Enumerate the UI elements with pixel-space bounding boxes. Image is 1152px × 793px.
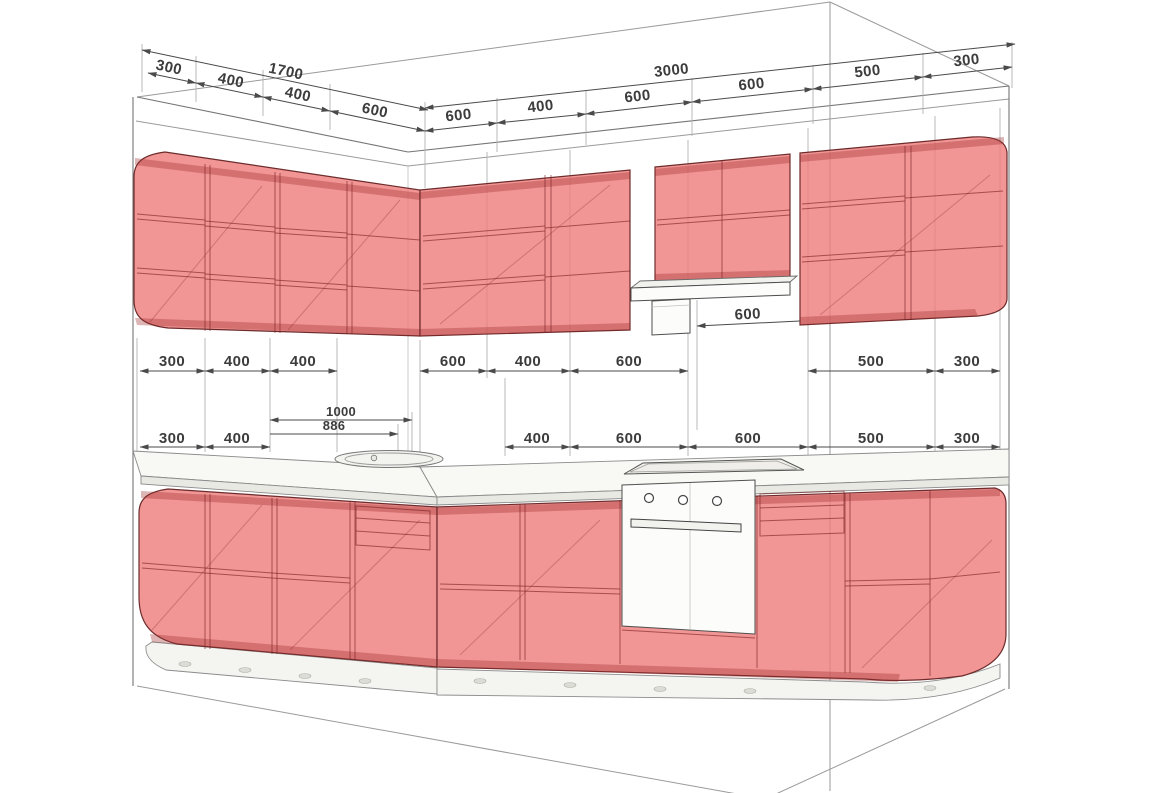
- dim-label: 300: [953, 51, 981, 71]
- dim-label: 600: [616, 353, 642, 370]
- dim-label: 500: [858, 430, 884, 447]
- dim-label: 1000: [326, 404, 356, 419]
- dim-label: 600: [616, 430, 642, 447]
- sink: [335, 451, 443, 468]
- dim-label: 300: [954, 353, 980, 370]
- dim-label: 300: [159, 430, 185, 447]
- dim-label: 600: [445, 106, 473, 126]
- dim-label: 886: [323, 418, 346, 433]
- kitchen-drawing-canvas: 1700 300 400 400 600 3000 600 400 600 60…: [0, 0, 1152, 793]
- base-cabinets-right-run: [437, 480, 1006, 700]
- dim-label: 400: [224, 353, 250, 370]
- dim-label: 400: [224, 430, 250, 447]
- upper-cabinets-left-run: [134, 152, 420, 336]
- dim-label: 400: [524, 430, 550, 447]
- dim-label: 400: [515, 353, 541, 370]
- dim-label: 600: [735, 430, 761, 447]
- dim-label: 300: [159, 353, 185, 370]
- oven-knob: [713, 497, 722, 506]
- dim-label: 500: [854, 62, 882, 82]
- upper-cabinets-right-run: [420, 137, 1007, 336]
- dim-label: 500: [858, 353, 884, 370]
- dim-label: 600: [440, 353, 466, 370]
- upper-right-block2: [800, 137, 1007, 325]
- base-cabinets-left-run: [139, 489, 437, 694]
- dim-label: 400: [527, 97, 555, 117]
- dim-hood-width: 600: [697, 305, 800, 326]
- range-hood: [631, 276, 797, 335]
- dim-label: 3000: [653, 60, 690, 81]
- dim-label: 400: [290, 353, 316, 370]
- dim-label: 600: [624, 87, 652, 107]
- dim-label: 600: [734, 305, 761, 323]
- dim-label: 600: [738, 75, 766, 95]
- oven-knob: [645, 494, 654, 503]
- oven-knob: [679, 496, 688, 505]
- sink-drain: [371, 455, 377, 461]
- dim-label: 1700: [267, 60, 305, 84]
- dim-label: 300: [954, 430, 980, 447]
- kitchen-3d-drawing: 1700 300 400 400 600 3000 600 400 600 60…: [0, 0, 1152, 793]
